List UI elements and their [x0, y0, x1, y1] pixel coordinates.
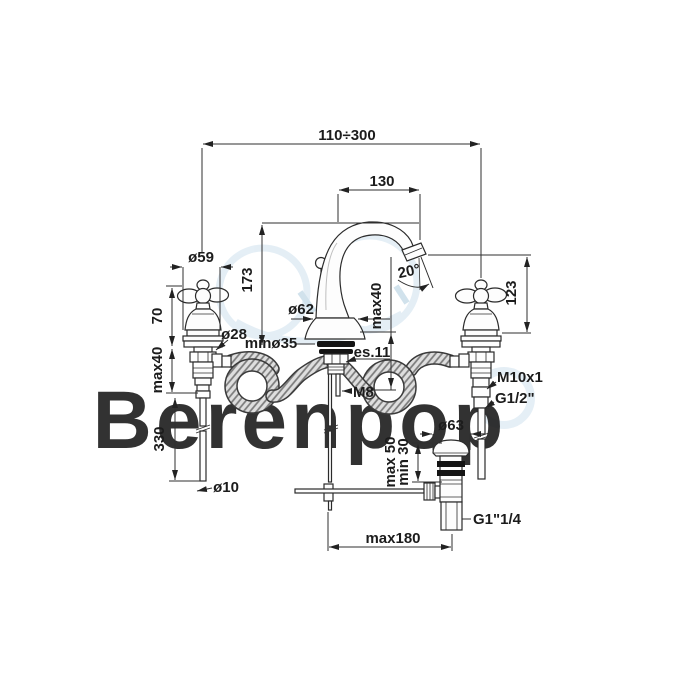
dim-pipe-length: 330: [151, 426, 168, 451]
technical-drawing-page: Berenpop: [0, 0, 685, 685]
dim-spout-base-diameter: ø62: [288, 301, 314, 318]
dim-stud-thread: M8: [353, 384, 374, 401]
dim-handle-height: 70: [149, 308, 166, 325]
base-gasket-lower: [319, 349, 353, 354]
dim-spread: 110÷300: [318, 127, 375, 144]
dim-supply-nut-thread: M10x1: [497, 369, 543, 386]
dim-outlet-height: 123: [503, 280, 520, 305]
dim-shank-diameter: ø28: [221, 326, 247, 343]
backnut-hex: [324, 354, 348, 364]
dim-pipe-diameter: ø10: [213, 479, 239, 496]
dim-drain-flange-diameter: ø63: [438, 417, 464, 434]
dim-drain-deck-min: min 30: [395, 438, 412, 486]
dim-deck-thickness-left: max40: [149, 347, 166, 394]
base-gasket-upper: [317, 341, 355, 347]
faucet-dimension-drawing: Berenpop: [0, 0, 685, 685]
popup-drain: [433, 440, 469, 530]
dim-hose-thread: G1/2": [495, 390, 535, 407]
dim-deck-thickness-center: max40: [368, 283, 385, 330]
dim-hex-size: es.11: [354, 344, 391, 361]
dim-spout-reach: 130: [369, 173, 394, 190]
dim-spout-height: 173: [239, 267, 256, 292]
spout-base: [305, 318, 365, 339]
dim-rod-reach: max180: [365, 530, 420, 547]
dim-drain-thread: G1"1/4: [473, 511, 522, 528]
dim-min-hole-diameter: minø35: [245, 335, 298, 352]
dim-handle-diameter: ø59: [188, 249, 214, 266]
m8-stud: [336, 374, 340, 396]
threaded-shank: [328, 364, 344, 374]
